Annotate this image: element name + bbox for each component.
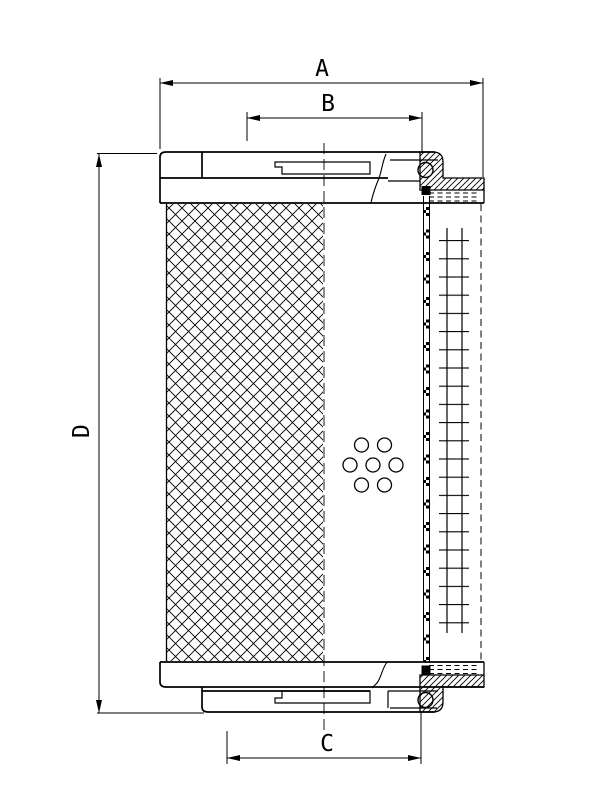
filter-media-section	[167, 204, 324, 661]
spring-coil-strip	[424, 196, 430, 662]
dim-c-label: C	[320, 731, 334, 757]
dim-d-label: D	[69, 424, 95, 438]
dim-b-label: B	[321, 91, 335, 117]
drawing-sheet: A B C D	[0, 0, 612, 792]
filter-element-technical-drawing: A B C D	[0, 0, 612, 792]
bypass-spring	[424, 196, 430, 662]
mesh-rungs	[439, 236, 469, 628]
dim-a-label: A	[315, 56, 329, 82]
bottom-spring-seat	[422, 666, 431, 675]
filter-media-crosshatch	[167, 204, 324, 661]
top-spring-seat	[422, 186, 431, 195]
